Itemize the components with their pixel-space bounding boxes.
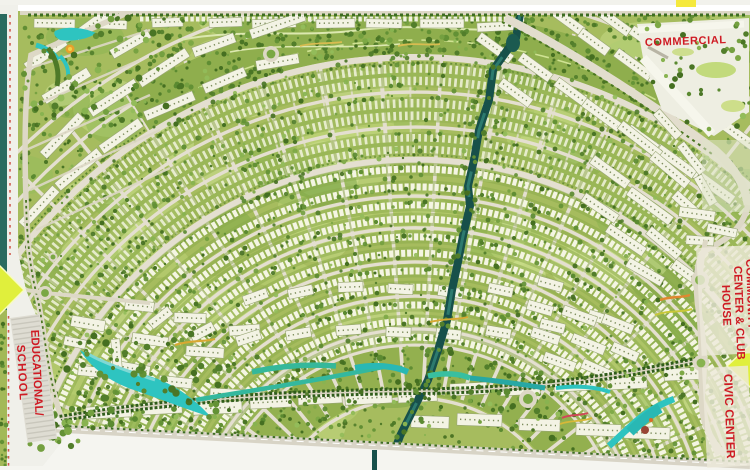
- svg-text:CIVIC CENTER: CIVIC CENTER: [721, 374, 738, 459]
- svg-text:HOUSE: HOUSE: [719, 285, 732, 327]
